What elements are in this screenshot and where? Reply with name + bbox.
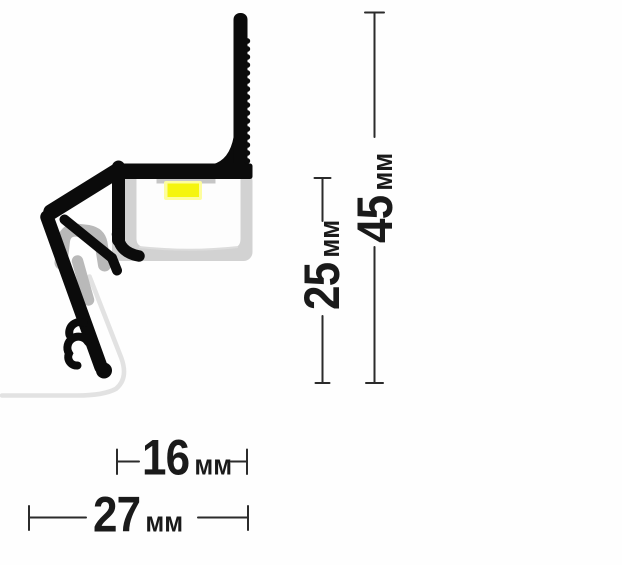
dim-45-label: 45мм — [346, 153, 402, 243]
svg-text:25мм: 25мм — [293, 220, 349, 310]
dim-27-unit: мм — [145, 505, 183, 538]
svg-text:45мм: 45мм — [346, 153, 402, 243]
fin-flange-fillet — [212, 136, 234, 165]
diagram-svg: 45мм 25мм 16мм 27мм — [0, 0, 622, 565]
svg-text:27мм: 27мм — [93, 486, 183, 542]
leg-barb-lower — [67, 337, 88, 366]
led-core — [168, 184, 200, 198]
dim-16-label: 16мм — [142, 429, 232, 485]
svg-text:16мм: 16мм — [142, 429, 232, 485]
top-flange — [113, 164, 253, 180]
inner-strut-tip — [112, 258, 117, 271]
dim-45-value: 45 — [346, 196, 402, 243]
dim-16-value: 16 — [142, 429, 189, 485]
dim-25-unit: мм — [312, 220, 345, 258]
dim-27-label: 27мм — [93, 486, 183, 542]
profile-dimension-diagram: 45мм 25мм 16мм 27мм — [0, 0, 622, 565]
dim-25-value: 25 — [293, 263, 349, 310]
dim-25-label: 25мм — [293, 220, 349, 310]
wall-arm — [51, 171, 117, 212]
dim-16-unit: мм — [194, 448, 232, 481]
diffuser-box — [112, 172, 253, 261]
dim-27-value: 27 — [93, 486, 140, 542]
dim-45-unit: мм — [365, 153, 398, 191]
fin-serration-teeth — [244, 38, 250, 172]
